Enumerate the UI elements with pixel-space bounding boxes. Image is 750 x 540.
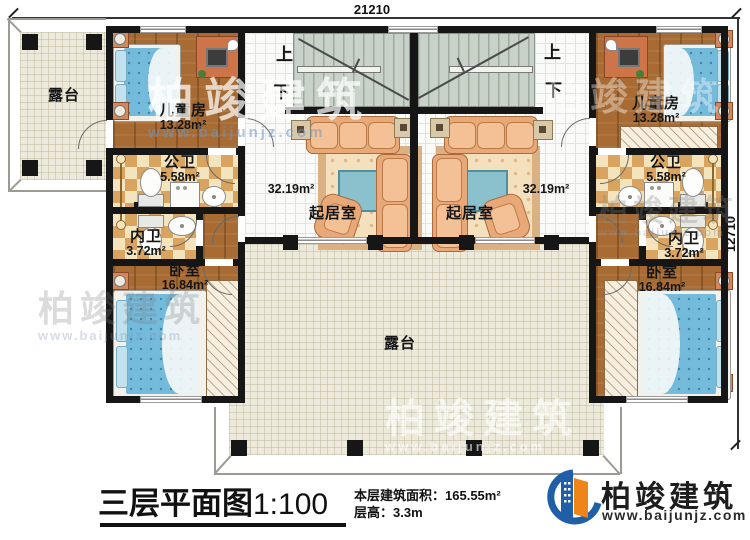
window <box>388 26 438 33</box>
room-label-living-right: 起居室 <box>446 206 494 222</box>
sink <box>618 186 642 207</box>
room-label-bath-public-left: 公卫 5.58m² <box>160 155 200 185</box>
knob-icon <box>657 186 661 190</box>
sofa-cushion <box>382 158 408 202</box>
bed-blanket <box>644 294 680 394</box>
dimension-tick <box>730 440 741 451</box>
speaker-icon <box>297 126 304 133</box>
company-logo-icon <box>544 466 602 532</box>
scale-label: 1:100 <box>253 488 328 521</box>
faucet-icon <box>212 195 216 199</box>
sofa-cushion <box>339 122 367 149</box>
room-label-bath-inner-right: 内卫 3.72m² <box>664 231 704 261</box>
column <box>544 235 559 250</box>
column <box>466 440 482 456</box>
room-name: 露台 <box>48 88 80 104</box>
room-area-living-right: 32.19m² <box>523 183 570 197</box>
company-website: www.baijunjz.com <box>602 507 747 523</box>
bed-pillow <box>116 300 128 342</box>
logo-building-icon <box>544 466 602 532</box>
window-terrace-door <box>475 237 535 244</box>
desk-lamp-icon <box>605 39 617 51</box>
window <box>140 26 186 33</box>
floor-height-label: 层高： <box>354 505 393 520</box>
window-terrace-door <box>297 237 367 244</box>
room-area: 5.58m² <box>646 171 686 185</box>
room-name: 公卫 <box>646 155 686 171</box>
room-label-living-left: 起居室 <box>309 206 357 222</box>
sofa-cushion <box>368 122 396 149</box>
column <box>583 440 599 456</box>
knob-icon <box>650 186 654 190</box>
plumbing-valve <box>708 220 718 230</box>
wardrobe-bedroom-right <box>604 280 638 400</box>
plant-icon <box>198 70 206 78</box>
room-label-terrace-bottom: 露台 <box>384 336 416 352</box>
floor-height-line: 层高：3.3m <box>354 504 501 521</box>
page-title: 三层平面图 <box>98 486 253 521</box>
sofa-cushion <box>477 122 505 149</box>
column <box>86 34 102 50</box>
knob-icon <box>176 186 180 190</box>
column <box>86 160 102 176</box>
column <box>368 235 383 250</box>
terrace-bottom-railing-corner <box>214 455 231 474</box>
terrace-bottom-floor <box>229 244 604 455</box>
floor-area-line: 本层建筑面积：165.55m² <box>354 487 501 504</box>
window <box>626 396 688 403</box>
plumbing-valve <box>708 154 718 164</box>
wardrobe-children-right <box>620 126 718 150</box>
speaker-icon <box>539 126 546 133</box>
room-name: 儿童房 <box>159 103 207 119</box>
wall-interior <box>106 207 245 214</box>
stair-up-label-left: 上 <box>276 40 293 65</box>
column <box>231 440 247 456</box>
wall-exterior-right <box>721 26 728 403</box>
stair-rail-left <box>297 66 381 73</box>
washing-machine <box>170 182 200 208</box>
wall-wing-left <box>238 26 245 403</box>
terrace-left-railing <box>8 18 106 20</box>
room-area: 13.28m² <box>159 119 207 133</box>
toilet <box>140 168 162 197</box>
lamp-icon <box>114 275 126 287</box>
faucet-icon <box>628 195 632 199</box>
room-area: 32.19m² <box>268 183 315 197</box>
floor-height-value: 3.3m <box>393 505 423 520</box>
room-name: 起居室 <box>446 206 494 222</box>
door-gap <box>589 216 596 242</box>
room-label-children-left: 儿童房 13.28m² <box>159 103 207 133</box>
room-label-children-right: 儿童房 13.28m² <box>632 96 680 126</box>
terrace-left-floor <box>20 32 106 180</box>
room-area: 16.84m² <box>162 279 209 293</box>
room-area: 32.19m² <box>523 183 570 197</box>
window <box>140 396 202 403</box>
side-table <box>430 118 450 138</box>
computer-monitor <box>618 48 640 67</box>
door-gap <box>208 148 236 155</box>
plumbing-valve <box>116 220 126 230</box>
wall-interior <box>589 207 728 214</box>
title-underline <box>100 523 346 527</box>
speaker-icon <box>400 124 407 131</box>
wall-wing-right <box>589 26 596 403</box>
room-area: 16.84m² <box>639 281 686 295</box>
floor-area-value: 165.55m² <box>445 488 501 503</box>
dimension-width-label: 21210 <box>354 2 390 17</box>
terrace-bottom-railing-corner <box>603 455 620 474</box>
room-name: 卧室 <box>639 265 686 281</box>
column <box>347 440 363 456</box>
side-table <box>291 120 311 140</box>
nightstand <box>111 272 129 290</box>
terrace-left-railing <box>8 18 10 192</box>
wall-exterior-left <box>106 26 113 403</box>
room-area: 13.28m² <box>632 112 680 126</box>
bed-pillow <box>115 50 127 82</box>
washing-machine <box>644 182 674 208</box>
sofa-cushion <box>506 122 534 149</box>
knob-icon <box>183 186 187 190</box>
door-gap <box>106 120 113 148</box>
room-area: 3.72m² <box>664 247 704 261</box>
plumbing-valve <box>116 154 126 164</box>
wall-party <box>410 26 418 244</box>
room-label-bath-inner-left: 内卫 3.72m² <box>126 229 166 259</box>
stair-down-label-right: 下 <box>545 76 562 101</box>
terrace-bottom-railing <box>214 407 216 474</box>
sofa-cushion <box>436 158 462 202</box>
side-table <box>533 120 553 140</box>
room-name: 卧室 <box>162 263 209 279</box>
door-gap <box>601 259 629 266</box>
door-gap <box>589 118 596 146</box>
computer-monitor <box>206 48 228 67</box>
title-block: 三层平面图1:100 <box>98 478 328 523</box>
door-gap <box>238 216 245 242</box>
wall-stair-left <box>285 107 410 114</box>
bed-pillow <box>116 346 128 388</box>
column <box>283 235 298 250</box>
lamp-icon <box>114 33 126 45</box>
floor-plan-page: 21210 12710 <box>0 0 750 540</box>
wall-stair-right <box>418 107 543 114</box>
sofa-cushion <box>310 122 338 149</box>
door-gap <box>639 220 646 246</box>
terrace-bottom-railing <box>620 407 622 474</box>
terrace-left-railing <box>8 190 106 192</box>
wardrobe-bedroom-left <box>206 280 240 400</box>
room-name: 公卫 <box>160 155 200 171</box>
room-area-living-left: 32.19m² <box>268 183 315 197</box>
floor-info: 本层建筑面积：165.55m² 层高：3.3m <box>354 487 501 521</box>
room-name: 儿童房 <box>632 96 680 112</box>
sofa-cushion <box>448 122 476 149</box>
room-name: 内卫 <box>126 229 166 245</box>
stair-up-label-right: 上 <box>544 38 561 63</box>
door-gap <box>196 220 203 246</box>
window <box>656 26 702 33</box>
room-name: 起居室 <box>309 206 357 222</box>
room-area: 3.72m² <box>126 245 166 259</box>
door-gap <box>205 259 233 266</box>
column <box>22 160 38 176</box>
room-name: 露台 <box>384 336 416 352</box>
nightstand <box>111 102 129 120</box>
room-name: 内卫 <box>664 231 704 247</box>
room-area: 5.58m² <box>160 171 200 185</box>
floor-area-label: 本层建筑面积： <box>354 488 445 503</box>
plant-icon <box>636 70 644 78</box>
door-gap <box>598 148 626 155</box>
speaker-icon <box>436 124 443 131</box>
room-label-bedroom-left: 卧室 16.84m² <box>162 263 209 293</box>
sink <box>202 186 226 207</box>
column <box>459 235 474 250</box>
column <box>22 34 38 50</box>
stair-down-label-left: 下 <box>273 78 290 103</box>
room-label-bath-public-right: 公卫 5.58m² <box>646 155 686 185</box>
door-gap <box>238 118 245 146</box>
bed-blanket <box>162 294 198 394</box>
lamp-icon <box>114 105 126 117</box>
room-label-bedroom-right: 卧室 16.84m² <box>639 265 686 295</box>
room-label-terrace-left: 露台 <box>48 88 80 104</box>
dimension-line-top <box>12 17 740 19</box>
